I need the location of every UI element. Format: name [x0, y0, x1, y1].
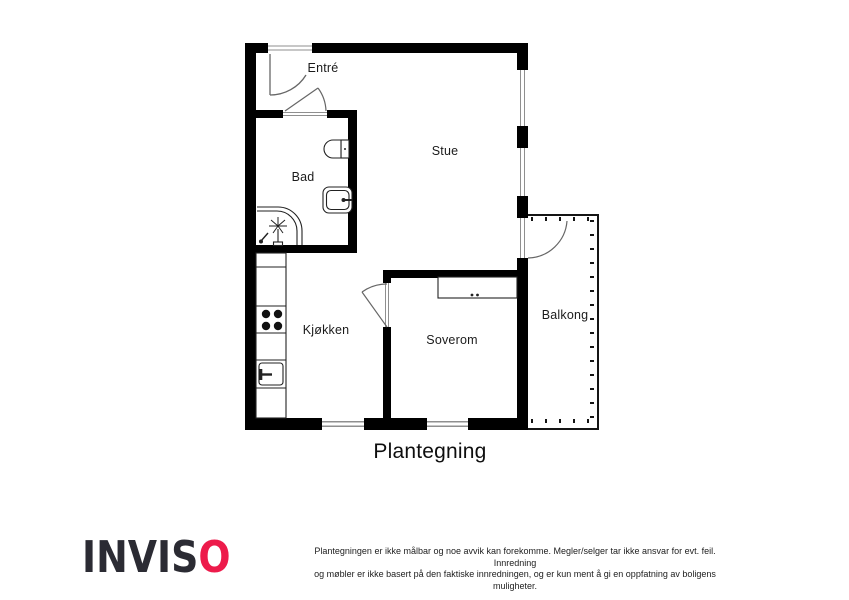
- entry-door-swing-icon: [270, 54, 306, 95]
- wall-bedroom-left-lower: [383, 327, 391, 418]
- balcony-railing: [528, 214, 599, 430]
- wall-bathroom-right: [348, 110, 357, 253]
- bathroom-door-opening: [283, 110, 327, 118]
- disclaimer-line-2: og møbler er ikke basert på den faktiske…: [296, 569, 734, 592]
- wall-bottom-middle-segment: [364, 418, 427, 430]
- wall-top-left-segment: [245, 43, 268, 53]
- wall-bedroom-left-upper: [383, 270, 391, 283]
- window-living-room-1: [517, 70, 528, 126]
- balcony-railing-ticks-right: [590, 220, 594, 422]
- inviso-logo-text-dark: INVIS: [82, 532, 198, 583]
- wall-bathroom-top-left: [256, 110, 283, 118]
- wardrobe-icon: [438, 277, 517, 298]
- balcony-railing-ticks-bottom: [531, 419, 595, 423]
- wall-exterior-left: [245, 43, 256, 430]
- balcony-door-opening: [517, 218, 528, 258]
- bathroom-door-swing-icon: [285, 88, 326, 111]
- balcony-railing-ticks-top: [531, 217, 595, 221]
- fixtures-layer: [0, 0, 849, 600]
- room-label-kjokken: Kjøkken: [303, 323, 350, 337]
- room-label-bad: Bad: [292, 170, 315, 184]
- toilet-icon: [324, 140, 349, 158]
- entry-door-opening: [268, 43, 312, 53]
- disclaimer-line-1: Plantegningen er ikke målbar og noe avvi…: [296, 546, 734, 569]
- room-label-entre: Entré: [308, 61, 339, 75]
- room-label-soverom: Soverom: [426, 333, 477, 347]
- wall-right-pier-1: [517, 126, 528, 148]
- plan-title: Plantegning: [373, 440, 486, 464]
- wall-bathroom-bottom: [256, 245, 357, 253]
- wall-bedroom-top: [383, 270, 517, 278]
- window-kitchen: [322, 418, 364, 430]
- bedroom-door-opening: [383, 283, 391, 327]
- inviso-logo-text-accent: O: [198, 532, 230, 583]
- disclaimer: Plantegningen er ikke målbar og noe avvi…: [296, 546, 734, 592]
- window-living-room-2: [517, 148, 528, 196]
- floor-plan-page: Entré Bad Stue Kjøkken Soverom Balkong P…: [0, 0, 849, 600]
- stove-4-burner-icon: [262, 310, 282, 330]
- wall-bottom-left-segment: [245, 418, 322, 430]
- wall-right-pier-2: [517, 196, 528, 218]
- wall-top-right-corner: [517, 43, 528, 70]
- room-label-stue: Stue: [432, 144, 459, 158]
- counter-icon: [256, 253, 286, 418]
- room-label-balkong: Balkong: [542, 308, 589, 322]
- window-bedroom: [427, 418, 468, 430]
- wall-top-main-segment: [312, 43, 517, 53]
- kitchen-sink-icon: [259, 363, 283, 385]
- corner-shower-icon: [257, 207, 302, 246]
- wall-bottom-right-segment: [468, 418, 528, 430]
- inviso-logo: INVISO: [82, 537, 231, 579]
- wall-right-lower: [517, 258, 528, 430]
